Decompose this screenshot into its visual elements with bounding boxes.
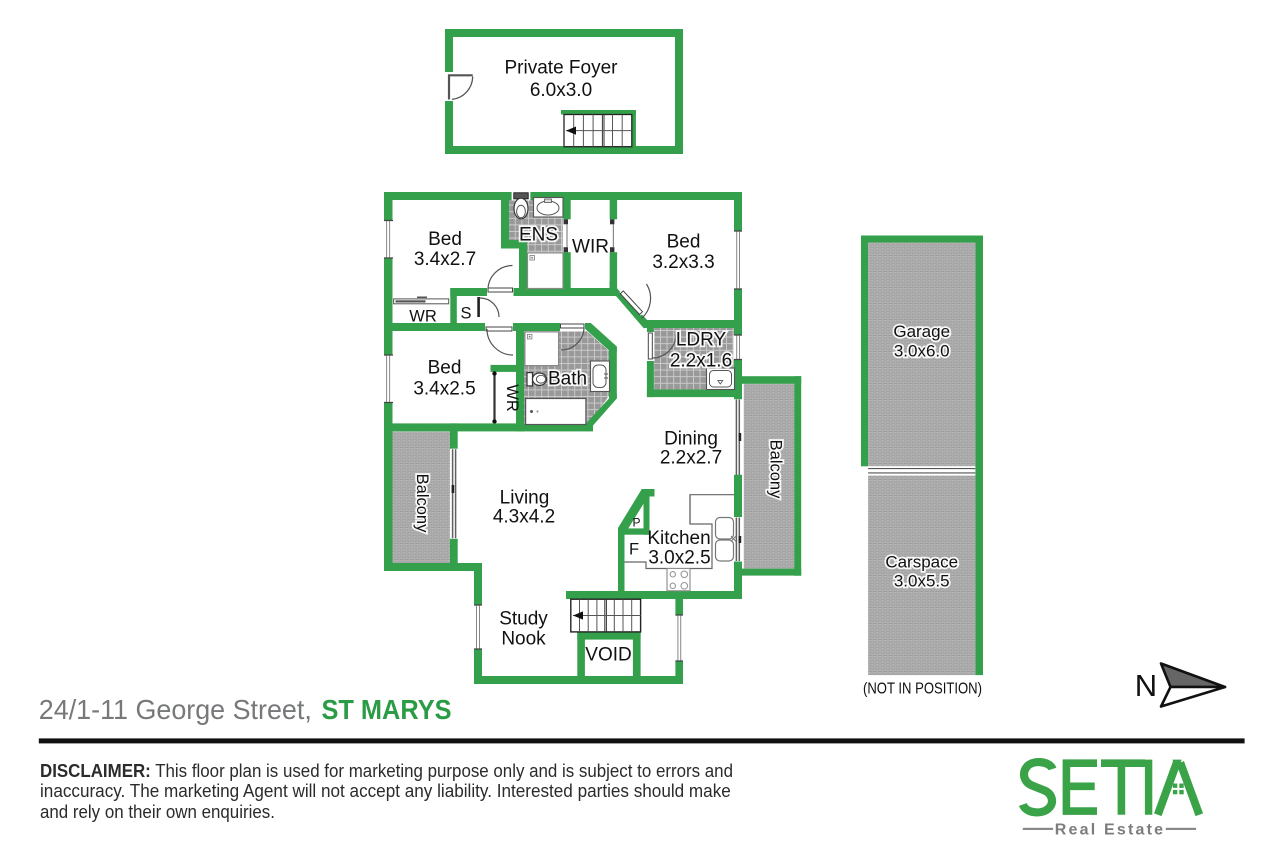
svg-text:Living: Living	[500, 488, 550, 509]
svg-text:Study: Study	[499, 609, 548, 630]
svg-text:N: N	[1135, 668, 1157, 703]
svg-text:ST MARYS: ST MARYS	[322, 694, 452, 725]
svg-text:WR: WR	[409, 307, 437, 325]
svg-text:LDRY: LDRY	[676, 330, 727, 351]
svg-text:Dining: Dining	[664, 429, 718, 450]
svg-text:Nook: Nook	[501, 629, 546, 650]
svg-text:Bed: Bed	[428, 229, 462, 250]
svg-text:Carspace: Carspace	[885, 553, 958, 572]
svg-text:2.2x1.6: 2.2x1.6	[670, 351, 732, 372]
svg-text:3.0x2.5: 3.0x2.5	[648, 548, 710, 569]
svg-text:3.2x3.3: 3.2x3.3	[652, 252, 714, 273]
svg-text:24/1-11 George Street,: 24/1-11 George Street,	[39, 694, 312, 725]
svg-text:Garage: Garage	[893, 322, 950, 341]
svg-text:3.4x2.7: 3.4x2.7	[414, 249, 476, 270]
svg-text:3.0x6.0: 3.0x6.0	[894, 342, 950, 361]
svg-text:WIR: WIR	[572, 237, 609, 258]
svg-text:F: F	[629, 541, 639, 559]
svg-text:P: P	[632, 515, 640, 529]
svg-text:VOID: VOID	[585, 644, 631, 665]
svg-text:Bed: Bed	[428, 358, 462, 379]
svg-text:4.3x4.2: 4.3x4.2	[493, 507, 555, 528]
svg-text:2.2x2.7: 2.2x2.7	[660, 448, 722, 469]
svg-text:Balcony: Balcony	[767, 440, 785, 499]
svg-text:Real Estate: Real Estate	[1055, 822, 1165, 839]
svg-text:6.0x3.0: 6.0x3.0	[530, 80, 592, 101]
svg-text:Kitchen: Kitchen	[647, 528, 710, 549]
svg-text:WR: WR	[503, 384, 521, 412]
svg-text:S: S	[460, 305, 471, 323]
svg-text:Private Foyer: Private Foyer	[505, 58, 619, 79]
svg-text:Balcony: Balcony	[413, 474, 431, 533]
svg-text:3.4x2.5: 3.4x2.5	[413, 379, 475, 400]
svg-text:(NOT IN POSITION): (NOT IN POSITION)	[863, 681, 982, 698]
svg-text:3.0x5.5: 3.0x5.5	[894, 572, 950, 591]
svg-text:ENS: ENS	[519, 225, 558, 246]
svg-text:Bath: Bath	[548, 369, 587, 390]
svg-text:Bed: Bed	[667, 231, 701, 252]
